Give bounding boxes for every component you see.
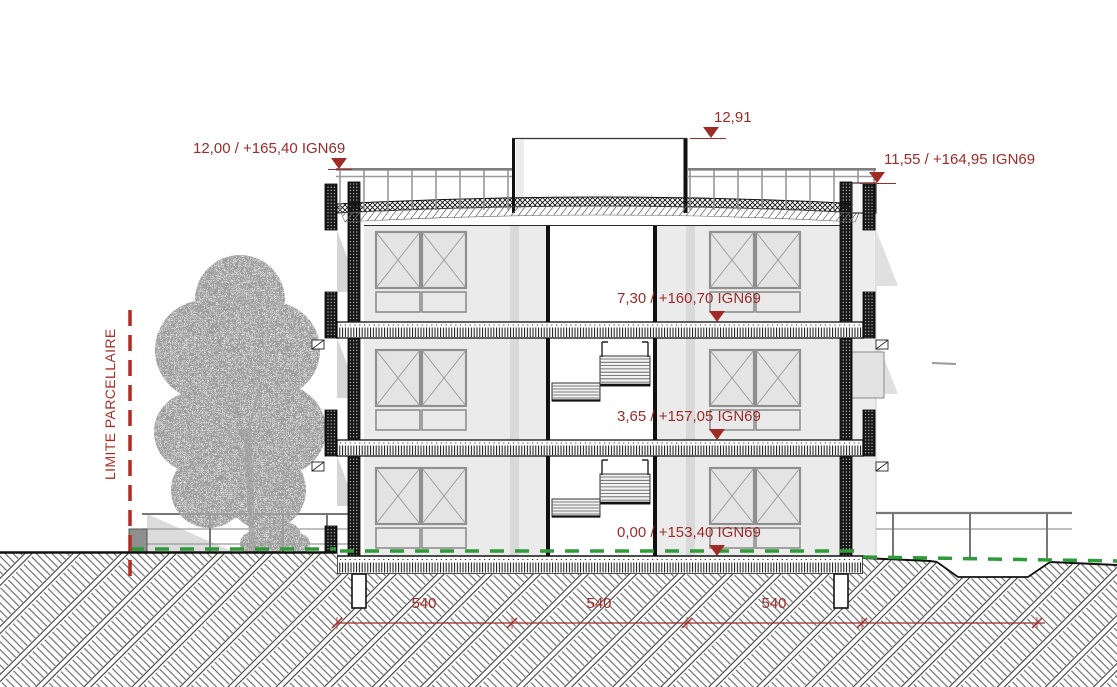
boundary-fence-right xyxy=(876,513,1072,558)
level-annotation-ground: 0,00 / +153,40 IGN69 xyxy=(617,525,761,540)
site-right xyxy=(852,212,1072,558)
dimension-label-3: 540 xyxy=(761,596,786,611)
stray-mark xyxy=(932,363,956,364)
architectural-section-drawing: 12,00 / +165,40 IGN69 12,91 11,55 / +164… xyxy=(0,0,1117,687)
staircase xyxy=(552,342,650,517)
facade-projection xyxy=(852,352,884,398)
site-left xyxy=(129,255,348,557)
boundary-label: LIMITE PARCELLAIRE xyxy=(102,308,118,480)
level-annotation-floor1: 3,65 / +157,05 IGN69 xyxy=(617,409,761,424)
foundation-pier-left xyxy=(352,574,366,608)
ground-slab xyxy=(337,556,863,574)
dimension-label-1: 540 xyxy=(411,596,436,611)
building-section xyxy=(364,226,840,557)
level-annotation-roof-right: 11,55 / +164,95 IGN69 xyxy=(884,152,1035,167)
level-annotation-floor2: 7,30 / +160,70 IGN69 xyxy=(617,291,761,306)
section-linework xyxy=(0,0,1117,687)
wall-right xyxy=(840,182,852,556)
dimension-label-2: 540 xyxy=(586,596,611,611)
level-annotation-bulkhead: 12,91 xyxy=(714,110,752,125)
foundation-pier-right xyxy=(834,574,848,608)
wall-left xyxy=(348,182,360,556)
floor-slab-level2 xyxy=(337,322,863,338)
floor-slab-level1 xyxy=(337,440,863,456)
level-annotation-roof-left: 12,00 / +165,40 IGN69 xyxy=(193,141,345,156)
tree-canopy xyxy=(154,255,326,530)
tree xyxy=(154,255,326,556)
